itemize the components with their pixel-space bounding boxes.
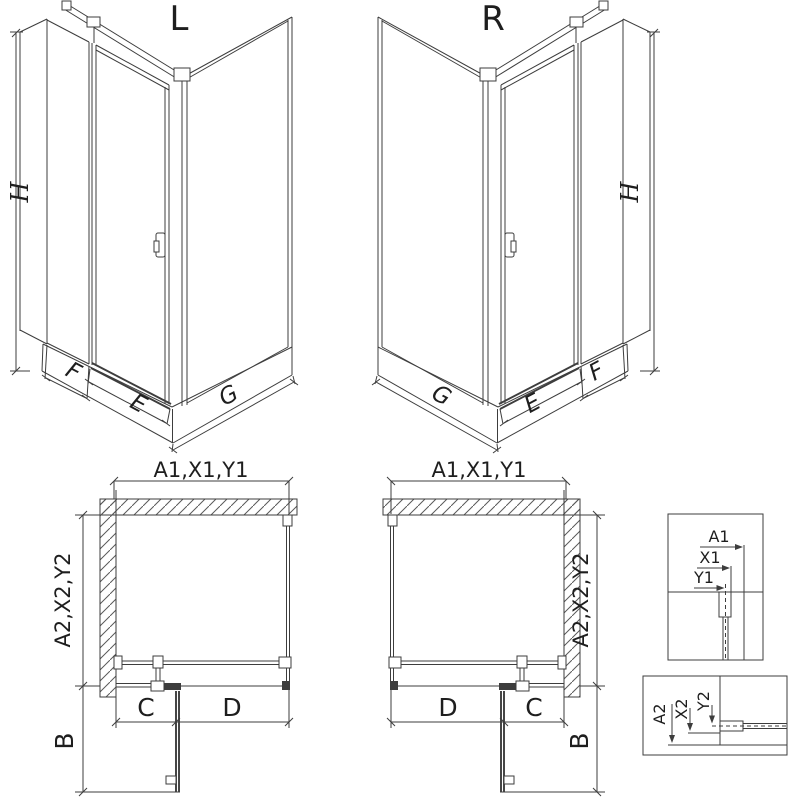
iso-view-left-drawing xyxy=(20,1,298,453)
dim-label-h-right: H xyxy=(616,180,644,203)
plan-dim-d-right: D xyxy=(438,693,457,722)
dim-label-h-left: H xyxy=(6,180,34,203)
plan-dim-a2-right: A2,X2,Y2 xyxy=(569,552,593,647)
plan-left-walls xyxy=(100,499,297,697)
plan-dim-c-left: C xyxy=(137,693,154,722)
detail-label-a2: A2 xyxy=(650,703,669,724)
dim-label-e-right: E xyxy=(520,389,545,419)
dim-label-e-left: E xyxy=(126,389,151,419)
plan-dim-d-left: D xyxy=(222,693,241,722)
detail-label-x2: X2 xyxy=(672,698,691,719)
detail-label-y2: Y2 xyxy=(694,691,713,712)
plan-dim-a2-left: A2,X2,Y2 xyxy=(51,552,75,647)
plan-dim-a1-right: A1,X1,Y1 xyxy=(431,458,526,482)
plan-dim-c-right: C xyxy=(525,693,542,722)
plan-dim-b-right: B xyxy=(565,732,594,749)
plan-dim-a1-left: A1,X1,Y1 xyxy=(153,458,248,482)
detail-label-y1: Y1 xyxy=(693,568,714,587)
view-label-right: R xyxy=(481,0,505,39)
iso-view-right-drawing xyxy=(372,1,650,453)
dim-label-f-right: F xyxy=(585,357,610,387)
view-label-left: L xyxy=(170,0,189,39)
detail-label-x1: X1 xyxy=(699,548,720,567)
shower-enclosure-technical-drawing: L R H H F E G G E F A1,X1,Y1 A1,X1,Y1 A2… xyxy=(0,0,800,800)
plan-dim-b-left: B xyxy=(50,732,79,749)
plan-right-walls xyxy=(383,499,580,697)
detail-label-a1: A1 xyxy=(708,527,729,546)
dim-label-f-left: F xyxy=(61,357,86,387)
